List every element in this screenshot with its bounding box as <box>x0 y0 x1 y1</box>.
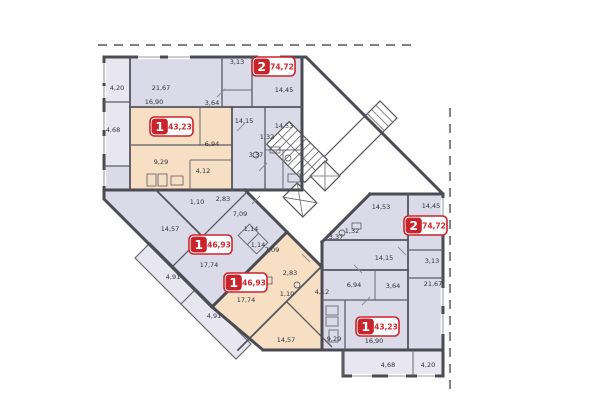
room-area-label: 9,29 <box>154 158 168 166</box>
room-area-label: 7,09 <box>233 210 247 218</box>
badge-room-count: 2 <box>257 59 266 74</box>
room-area-label: 14,15 <box>235 117 254 125</box>
room-area-label: 21,67 <box>424 280 443 288</box>
badge-area-value: 46,93 <box>207 241 231 250</box>
room-area-label: 3,13 <box>425 257 439 265</box>
badge-area-value: 46,93 <box>242 279 266 288</box>
room-area-label: 3,64 <box>205 99 219 107</box>
room-area-label: 4,91 <box>207 312 221 320</box>
balcony-top-left-lower <box>104 102 130 166</box>
apartment-badge-1-top-left: 1 43,23 <box>150 117 193 136</box>
room-area-label: 14,53 <box>275 122 294 130</box>
room-area-label: 3,13 <box>230 58 244 66</box>
room-area-label: 4,12 <box>196 167 210 175</box>
balcony-top-left-upper <box>104 57 130 102</box>
room-area-label: 1,32 <box>260 133 274 141</box>
room-area-label: 7,09 <box>265 246 279 254</box>
room-area-label: 1,10 <box>190 198 204 206</box>
room-area-label: 6,94 <box>205 140 219 148</box>
room-area-label: 4,68 <box>106 126 120 134</box>
floor-plan: 4,20 21,67 3,13 14,45 4,68 16,90 3,64 14… <box>0 0 602 400</box>
room-area-label: 9,29 <box>327 335 341 343</box>
room-area-label: 1,14 <box>244 225 258 233</box>
badge-room-count: 1 <box>229 275 238 290</box>
room-area-label: 14,45 <box>275 86 294 94</box>
room-area-label: 4,68 <box>381 361 395 369</box>
room-area-label: 3,37 <box>329 233 343 241</box>
room-area-label: 17,74 <box>237 296 256 304</box>
apartment-badge-2-right: 2 74,72 <box>404 216 447 235</box>
room-area-label: 3,64 <box>386 282 400 290</box>
room-area-label: 16,90 <box>145 98 164 106</box>
room-area-label: 17,74 <box>200 261 219 269</box>
apartment-badge-1-bottom-right: 1 43,23 <box>356 317 399 336</box>
room-area-label: 14,57 <box>161 225 180 233</box>
badge-room-count: 2 <box>409 218 418 233</box>
room-area-label: 2,83 <box>216 195 230 203</box>
balcony-bottom-left <box>343 350 413 376</box>
room-area-label: 21,67 <box>152 84 171 92</box>
room-area-label: 14,45 <box>422 202 441 210</box>
room-area-label: 4,20 <box>421 361 435 369</box>
room-area-label: 14,57 <box>277 336 296 344</box>
room-area-label: 6,94 <box>347 281 361 289</box>
room-area-label: 1,10 <box>280 290 294 298</box>
apartment-badge-2-top: 2 74,72 <box>252 57 295 76</box>
room-area-label: 14,15 <box>375 254 394 262</box>
apartment-badge-1-middle-upper: 1 46,93 <box>189 235 232 254</box>
badge-area-value: 43,23 <box>168 123 192 132</box>
room-area-label: 4,12 <box>315 288 329 296</box>
badge-room-count: 1 <box>155 119 164 134</box>
room-area-label: 1,14 <box>251 241 265 249</box>
room-area-label: 1,32 <box>345 227 359 235</box>
badge-area-value: 43,23 <box>374 323 398 332</box>
badge-room-count: 1 <box>361 319 370 334</box>
badge-area-value: 74,72 <box>422 222 446 231</box>
room-area-label: 2,83 <box>283 269 297 277</box>
room-area-label: 4,91 <box>166 273 180 281</box>
room-area-label: 16,90 <box>365 337 384 345</box>
room-area-label: 14,53 <box>372 203 391 211</box>
room-area-label: 3,37 <box>249 151 263 159</box>
badge-area-value: 74,72 <box>270 63 294 72</box>
room-area-label: 4,20 <box>110 84 124 92</box>
apartment-badge-1-middle-lower: 1 46,93 <box>224 273 267 292</box>
badge-room-count: 1 <box>194 237 203 252</box>
